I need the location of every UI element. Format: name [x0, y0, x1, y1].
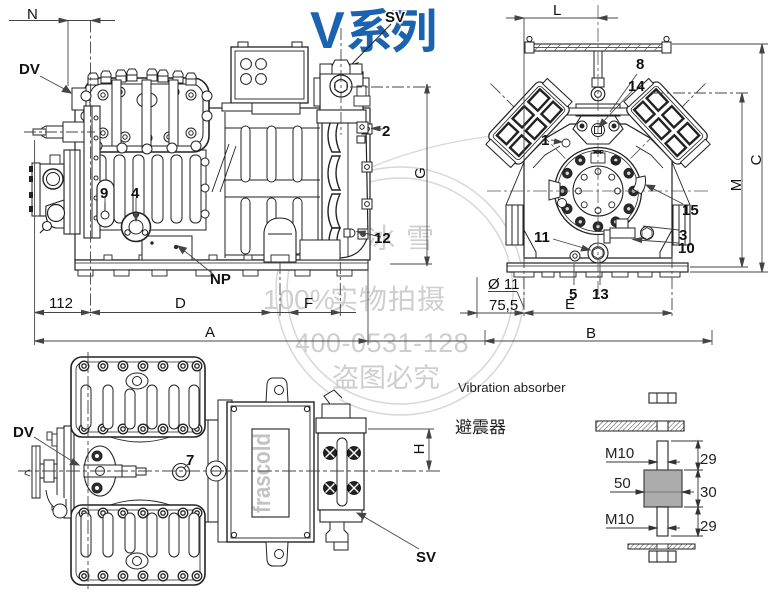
svg-text:7: 7: [186, 452, 194, 469]
svg-text:C: C: [748, 154, 765, 165]
svg-text:50: 50: [614, 475, 631, 492]
svg-text:10: 10: [678, 240, 695, 257]
svg-text:SV: SV: [385, 9, 405, 26]
svg-text:F: F: [304, 295, 313, 312]
svg-text:NP: NP: [210, 271, 231, 288]
svg-text:5: 5: [569, 286, 577, 303]
svg-text:Vibration absorber: Vibration absorber: [458, 380, 566, 395]
svg-text:30: 30: [700, 484, 717, 501]
svg-text:DV: DV: [13, 424, 34, 441]
svg-text:11: 11: [534, 229, 550, 246]
svg-text:13: 13: [592, 286, 609, 303]
svg-text:A: A: [205, 324, 215, 341]
svg-text:N: N: [27, 6, 38, 23]
svg-text:12: 12: [374, 230, 391, 247]
svg-text:M10: M10: [605, 511, 634, 528]
svg-text:H: H: [411, 444, 428, 455]
svg-text:Ø 11: Ø 11: [488, 276, 519, 293]
svg-text:1: 1: [541, 132, 549, 149]
svg-text:M10: M10: [605, 445, 634, 462]
svg-text:14: 14: [628, 78, 645, 95]
svg-text:2: 2: [382, 123, 390, 140]
svg-text:100%: 100%: [263, 284, 335, 315]
svg-text:29: 29: [700, 518, 717, 535]
svg-text:D: D: [175, 295, 186, 312]
svg-text:L: L: [553, 2, 561, 19]
svg-text:4: 4: [131, 185, 140, 202]
svg-text:G: G: [412, 167, 429, 179]
svg-text:29: 29: [700, 451, 717, 468]
svg-text:HP: HP: [611, 160, 617, 165]
svg-text:15: 15: [682, 202, 699, 219]
svg-text:SV: SV: [416, 549, 436, 566]
svg-text:400-0531-128: 400-0531-128: [295, 328, 469, 358]
svg-text:B: B: [586, 325, 596, 342]
svg-text:V: V: [310, 2, 345, 60]
svg-text:9: 9: [100, 185, 108, 202]
svg-text:112: 112: [49, 295, 73, 312]
svg-text:8: 8: [636, 56, 644, 73]
svg-text:M: M: [728, 179, 745, 192]
svg-text:frascold: frascold: [249, 433, 276, 513]
svg-text:DV: DV: [19, 61, 40, 78]
svg-text:75,5: 75,5: [489, 297, 518, 314]
